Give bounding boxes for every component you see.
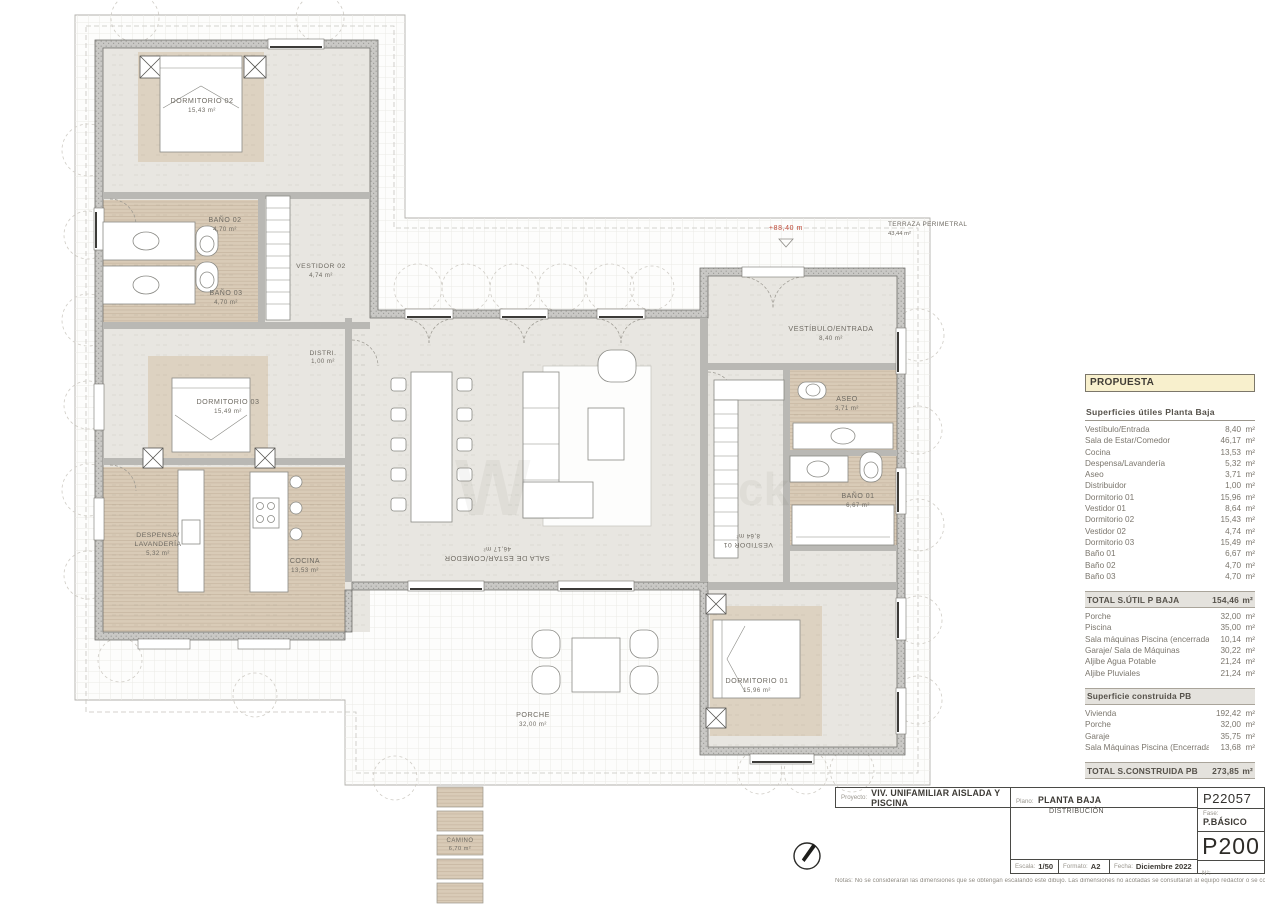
svg-text:SALA DE ESTAR/COMEDOR: SALA DE ESTAR/COMEDOR: [444, 554, 549, 563]
plano-label: Plano:: [1016, 798, 1034, 805]
scale-row: Escala: 1/50 Formato: A2 Fecha: Diciembr…: [1011, 859, 1197, 873]
vanity-bath03: [103, 266, 195, 304]
title-block: Proyecto: VIV. UNIFAMILIAR AISLADA Y PIS…: [835, 787, 1265, 874]
escala-cell: Escala: 1/50: [1011, 860, 1059, 873]
svg-text:5,32 m²: 5,32 m²: [146, 551, 170, 557]
num-cell: N°:: [1198, 860, 1264, 873]
proyecto-cell: Proyecto: VIV. UNIFAMILIAR AISLADA Y PIS…: [835, 787, 1011, 808]
svg-text:PORCHE: PORCHE: [516, 710, 550, 719]
svg-text:1,00 m²: 1,00 m²: [311, 359, 335, 365]
level-annotation: +88,40 m: [769, 225, 803, 232]
svg-text:VESTIDOR 02: VESTIDOR 02: [296, 263, 346, 270]
svg-text:BAÑO 02: BAÑO 02: [208, 215, 241, 224]
svg-text:8,64 m²: 8,64 m²: [736, 532, 760, 538]
notes-text: Notas: No se considerarán las dimensione…: [835, 878, 1265, 884]
table-row: Baño 024,70m²: [1085, 560, 1255, 571]
table-row: Sala máquinas Piscina (encerrada)10,14m²: [1085, 634, 1255, 645]
vanity-bath01: [790, 456, 848, 482]
sheet-number: P200: [1198, 832, 1264, 861]
svg-text:LAVANDERÍA: LAVANDERÍA: [134, 539, 181, 548]
formato-cell: Formato: A2: [1059, 860, 1110, 873]
svg-text:BAÑO 01: BAÑO 01: [841, 491, 874, 500]
total-construida-row: TOTAL S.CONSTRUIDA PB 273,85 m²: [1085, 762, 1255, 779]
vanity-aseo: [793, 423, 893, 449]
project-code: P22057: [1198, 788, 1264, 809]
table-row: Dormitorio 0215,43m²: [1085, 514, 1255, 525]
utiles-rows: Vestíbulo/Entrada8,40m²Sala de Estar/Com…: [1085, 424, 1255, 582]
proyecto-label: Proyecto:: [841, 794, 867, 801]
total-util-value: 154,46: [1207, 595, 1239, 605]
sofa-set: [523, 350, 651, 526]
drawing-sheet: { "plan": { "rooms": [ {"name":"DORMITOR…: [0, 0, 1280, 905]
fecha-cell: Fecha: Diciembre 2022: [1110, 860, 1197, 873]
table-row: Garaje35,75m²: [1085, 731, 1255, 742]
terraza-area: 43,44 m²: [888, 231, 911, 237]
proyecto-value: VIV. UNIFAMILIAR AISLADA Y PISCINA: [871, 788, 1005, 808]
svg-text:15,96 m²: 15,96 m²: [743, 688, 771, 694]
wardrobe-vestidor02: [266, 196, 290, 320]
svg-text:15,49 m²: 15,49 m²: [214, 409, 242, 415]
fase-cell: Fase: P.BÁSICO: [1198, 809, 1264, 832]
construida-title: Superficie construida PB: [1087, 691, 1253, 701]
plano-subtitle: DISTRIBUCIÓN: [1049, 808, 1192, 815]
watermark-part1: W: [455, 443, 531, 532]
svg-text:46,17 m²: 46,17 m²: [483, 545, 511, 551]
terraza-label: TERRAZA PERIMETRAL: [888, 221, 967, 228]
section-title-construida: Superficie construida PB: [1085, 688, 1255, 705]
table-row: Piscina35,00m²: [1085, 622, 1255, 633]
table-row: Aljibe Pluviales21,24m²: [1085, 668, 1255, 679]
svg-text:DORMITORIO 01: DORMITORIO 01: [725, 676, 788, 685]
total-util-label: TOTAL S.ÚTIL P BAJA: [1087, 595, 1207, 605]
svg-text:15,43 m²: 15,43 m²: [188, 108, 216, 114]
table-row: Distribuidor1,00m²: [1085, 480, 1255, 491]
svg-text:BAÑO 03: BAÑO 03: [209, 288, 242, 297]
shower-bath01: [792, 505, 894, 545]
svg-text:6,67 m²: 6,67 m²: [846, 503, 870, 509]
kitchen-counter: [178, 470, 204, 592]
table-row: Dormitorio 0315,49m²: [1085, 537, 1255, 548]
table-row: Baño 034,70m²: [1085, 571, 1255, 582]
svg-text:COCINA: COCINA: [290, 558, 320, 565]
svg-text:4,70 m²: 4,70 m²: [214, 300, 238, 306]
svg-text:8,40 m²: 8,40 m²: [819, 336, 843, 342]
watermark-part2: ck: [738, 463, 790, 515]
total-construida-label: TOTAL S.CONSTRUIDA PB: [1087, 766, 1207, 776]
svg-text:CAMINO: CAMINO: [447, 838, 474, 844]
svg-text:13,53 m²: 13,53 m²: [291, 568, 319, 574]
camino-stones: [437, 787, 483, 903]
svg-text:4,70 m²: 4,70 m²: [213, 227, 237, 233]
plano-cell: Plano: PLANTA BAJA DISTRIBUCIÓN: [1011, 788, 1197, 808]
exterior-rows: Porche32,00m²Piscina35,00m²Sala máquinas…: [1085, 611, 1255, 679]
svg-text:3,71 m²: 3,71 m²: [835, 406, 859, 412]
table-row: Vivienda192,42m²: [1085, 708, 1255, 719]
total-construida-value: 273,85: [1207, 766, 1239, 776]
table-row: Cocina13,53m²: [1085, 447, 1255, 458]
panel-header: PROPUESTA: [1085, 374, 1255, 392]
plano-value: PLANTA BAJA: [1038, 795, 1101, 805]
table-row: Aljibe Agua Potable21,24m²: [1085, 656, 1255, 667]
svg-text:DORMITORIO 02: DORMITORIO 02: [170, 96, 233, 105]
svg-text:DORMITORIO 03: DORMITORIO 03: [196, 397, 259, 406]
construida-rows: Vivienda192,42m²Porche32,00m²Garaje35,75…: [1085, 708, 1255, 753]
total-util-row: TOTAL S.ÚTIL P BAJA 154,46 m²: [1085, 591, 1255, 608]
table-row: Sala de Estar/Comedor46,17m²: [1085, 435, 1255, 446]
plano-column: Plano: PLANTA BAJA DISTRIBUCIÓN Escala: …: [1010, 787, 1198, 874]
table-row: Baño 016,67m²: [1085, 548, 1255, 559]
svg-text:VESTIDOR 01: VESTIDOR 01: [723, 541, 773, 548]
svg-text:VESTÍBULO/ENTRADA: VESTÍBULO/ENTRADA: [788, 324, 873, 333]
table-row: Vestidor 024,74m²: [1085, 526, 1255, 537]
north-arrow-icon: [794, 843, 820, 869]
bed-dorm01: [713, 620, 800, 698]
svg-text:ASEO: ASEO: [836, 396, 858, 403]
table-row: Vestíbulo/Entrada8,40m²: [1085, 424, 1255, 435]
section-title-utiles: Superficies útiles Planta Baja: [1085, 405, 1255, 421]
table-row: Garaje/ Sala de Máquinas30,22m²: [1085, 645, 1255, 656]
bed-dorm03: [172, 378, 250, 452]
svg-text:6,70 m²: 6,70 m²: [449, 846, 471, 852]
vanity-bath02: [103, 222, 195, 260]
table-row: Despensa/Lavandería5,32m²: [1085, 458, 1255, 469]
total-util-unit: m²: [1239, 595, 1253, 605]
table-row: Porche32,00m²: [1085, 719, 1255, 730]
svg-text:4,74 m²: 4,74 m²: [309, 273, 333, 279]
svg-text:DESPENSA/: DESPENSA/: [136, 532, 179, 539]
table-row: Dormitorio 0115,96m²: [1085, 492, 1255, 503]
svg-text:32,00 m²: 32,00 m²: [519, 722, 547, 728]
total-construida-unit: m²: [1239, 766, 1253, 776]
table-row: Porche32,00m²: [1085, 611, 1255, 622]
table-row: Aseo3,71m²: [1085, 469, 1255, 480]
svg-text:DISTRI.: DISTRI.: [310, 350, 337, 357]
areas-panel: PROPUESTA Superficies útiles Planta Baja…: [1085, 374, 1255, 779]
sheet-column: P22057 Fase: P.BÁSICO P200 N°:: [1197, 787, 1265, 874]
table-row: Vestidor 018,64m²: [1085, 503, 1255, 514]
table-row: Sala Máquinas Piscina (Encerrada)13,68m²: [1085, 742, 1255, 753]
